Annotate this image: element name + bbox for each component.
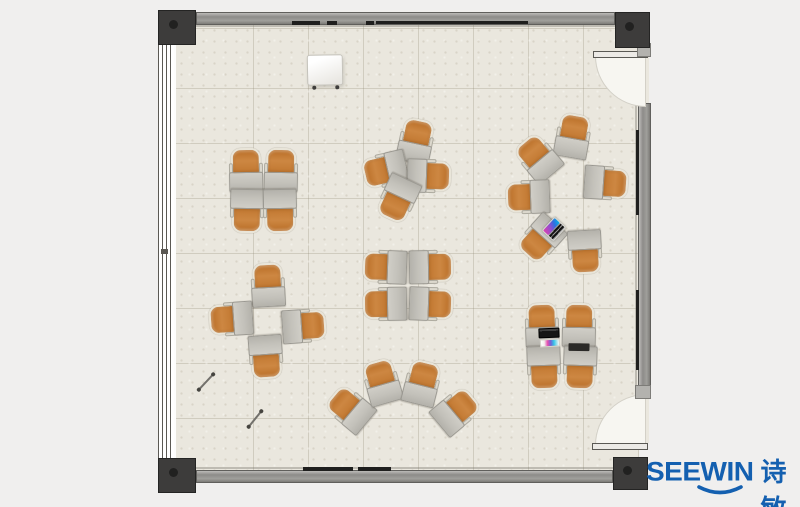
desk-chair-unit <box>229 148 264 193</box>
desk <box>387 287 408 321</box>
door-hinge-bottom <box>635 385 651 399</box>
desk-chair-unit <box>409 250 454 285</box>
desk <box>408 286 429 321</box>
desk-chair-unit <box>363 287 408 322</box>
corner-post-top-left <box>158 10 196 45</box>
desk-chair-unit <box>567 229 603 275</box>
desk-chair-unit <box>362 249 407 285</box>
door-leaf-bottom <box>592 443 648 450</box>
desk <box>526 345 561 366</box>
brand-logo-latin: SEEWIN <box>646 457 753 488</box>
desk-chair-unit <box>583 165 629 202</box>
laptop <box>538 328 559 339</box>
desk <box>567 229 602 251</box>
wall-mounted-board <box>292 21 320 25</box>
desk <box>251 286 286 308</box>
desk-chair-unit <box>263 189 298 234</box>
desk-chair-unit <box>505 179 550 215</box>
desk-chair-unit <box>208 301 254 338</box>
corner-post-bottom-left <box>158 458 196 493</box>
desk-chair-unit <box>408 286 453 322</box>
wall-mounted-board <box>366 21 374 25</box>
wall-mounted-board <box>636 130 639 215</box>
window-mullion <box>161 249 168 254</box>
wall-shadow <box>196 25 615 27</box>
desk-chair-unit <box>250 262 286 308</box>
corner-post-top-right <box>615 12 650 48</box>
logo-smile-icon <box>696 485 746 499</box>
wall-shadow <box>196 467 613 469</box>
desk <box>230 189 264 210</box>
desk <box>281 309 303 344</box>
desk-chair-unit <box>264 148 299 193</box>
paper-stack <box>540 338 560 347</box>
flipchart-board <box>307 54 344 86</box>
bottom-wall <box>196 470 613 483</box>
desk-chair-unit <box>526 345 562 390</box>
brand-logo: SEEWIN 诗敏 <box>646 452 800 507</box>
wall-mounted-board <box>636 290 639 370</box>
wall-mounted-board <box>358 467 391 471</box>
tablet <box>568 343 589 351</box>
corner-post-bottom-right <box>613 457 648 490</box>
desk <box>232 301 254 336</box>
desk-chair-unit <box>248 334 285 380</box>
desk <box>583 165 605 200</box>
desk-chair-unit <box>562 345 598 390</box>
desk <box>386 250 407 285</box>
desk-chair-unit <box>230 189 265 234</box>
floorplan-canvas: SEEWIN 诗敏 <box>0 0 800 507</box>
brand-logo-chinese: 诗敏 <box>760 452 800 507</box>
desk-chair-unit <box>281 308 327 345</box>
desk-chair-unit <box>562 303 597 348</box>
desk <box>529 179 550 214</box>
wall-mounted-board <box>327 21 337 25</box>
right-wall <box>638 103 651 398</box>
desk <box>263 189 297 210</box>
wall-mounted-board <box>376 21 528 24</box>
desk <box>409 250 430 284</box>
wall-mounted-board <box>303 467 353 471</box>
desk <box>248 334 283 356</box>
